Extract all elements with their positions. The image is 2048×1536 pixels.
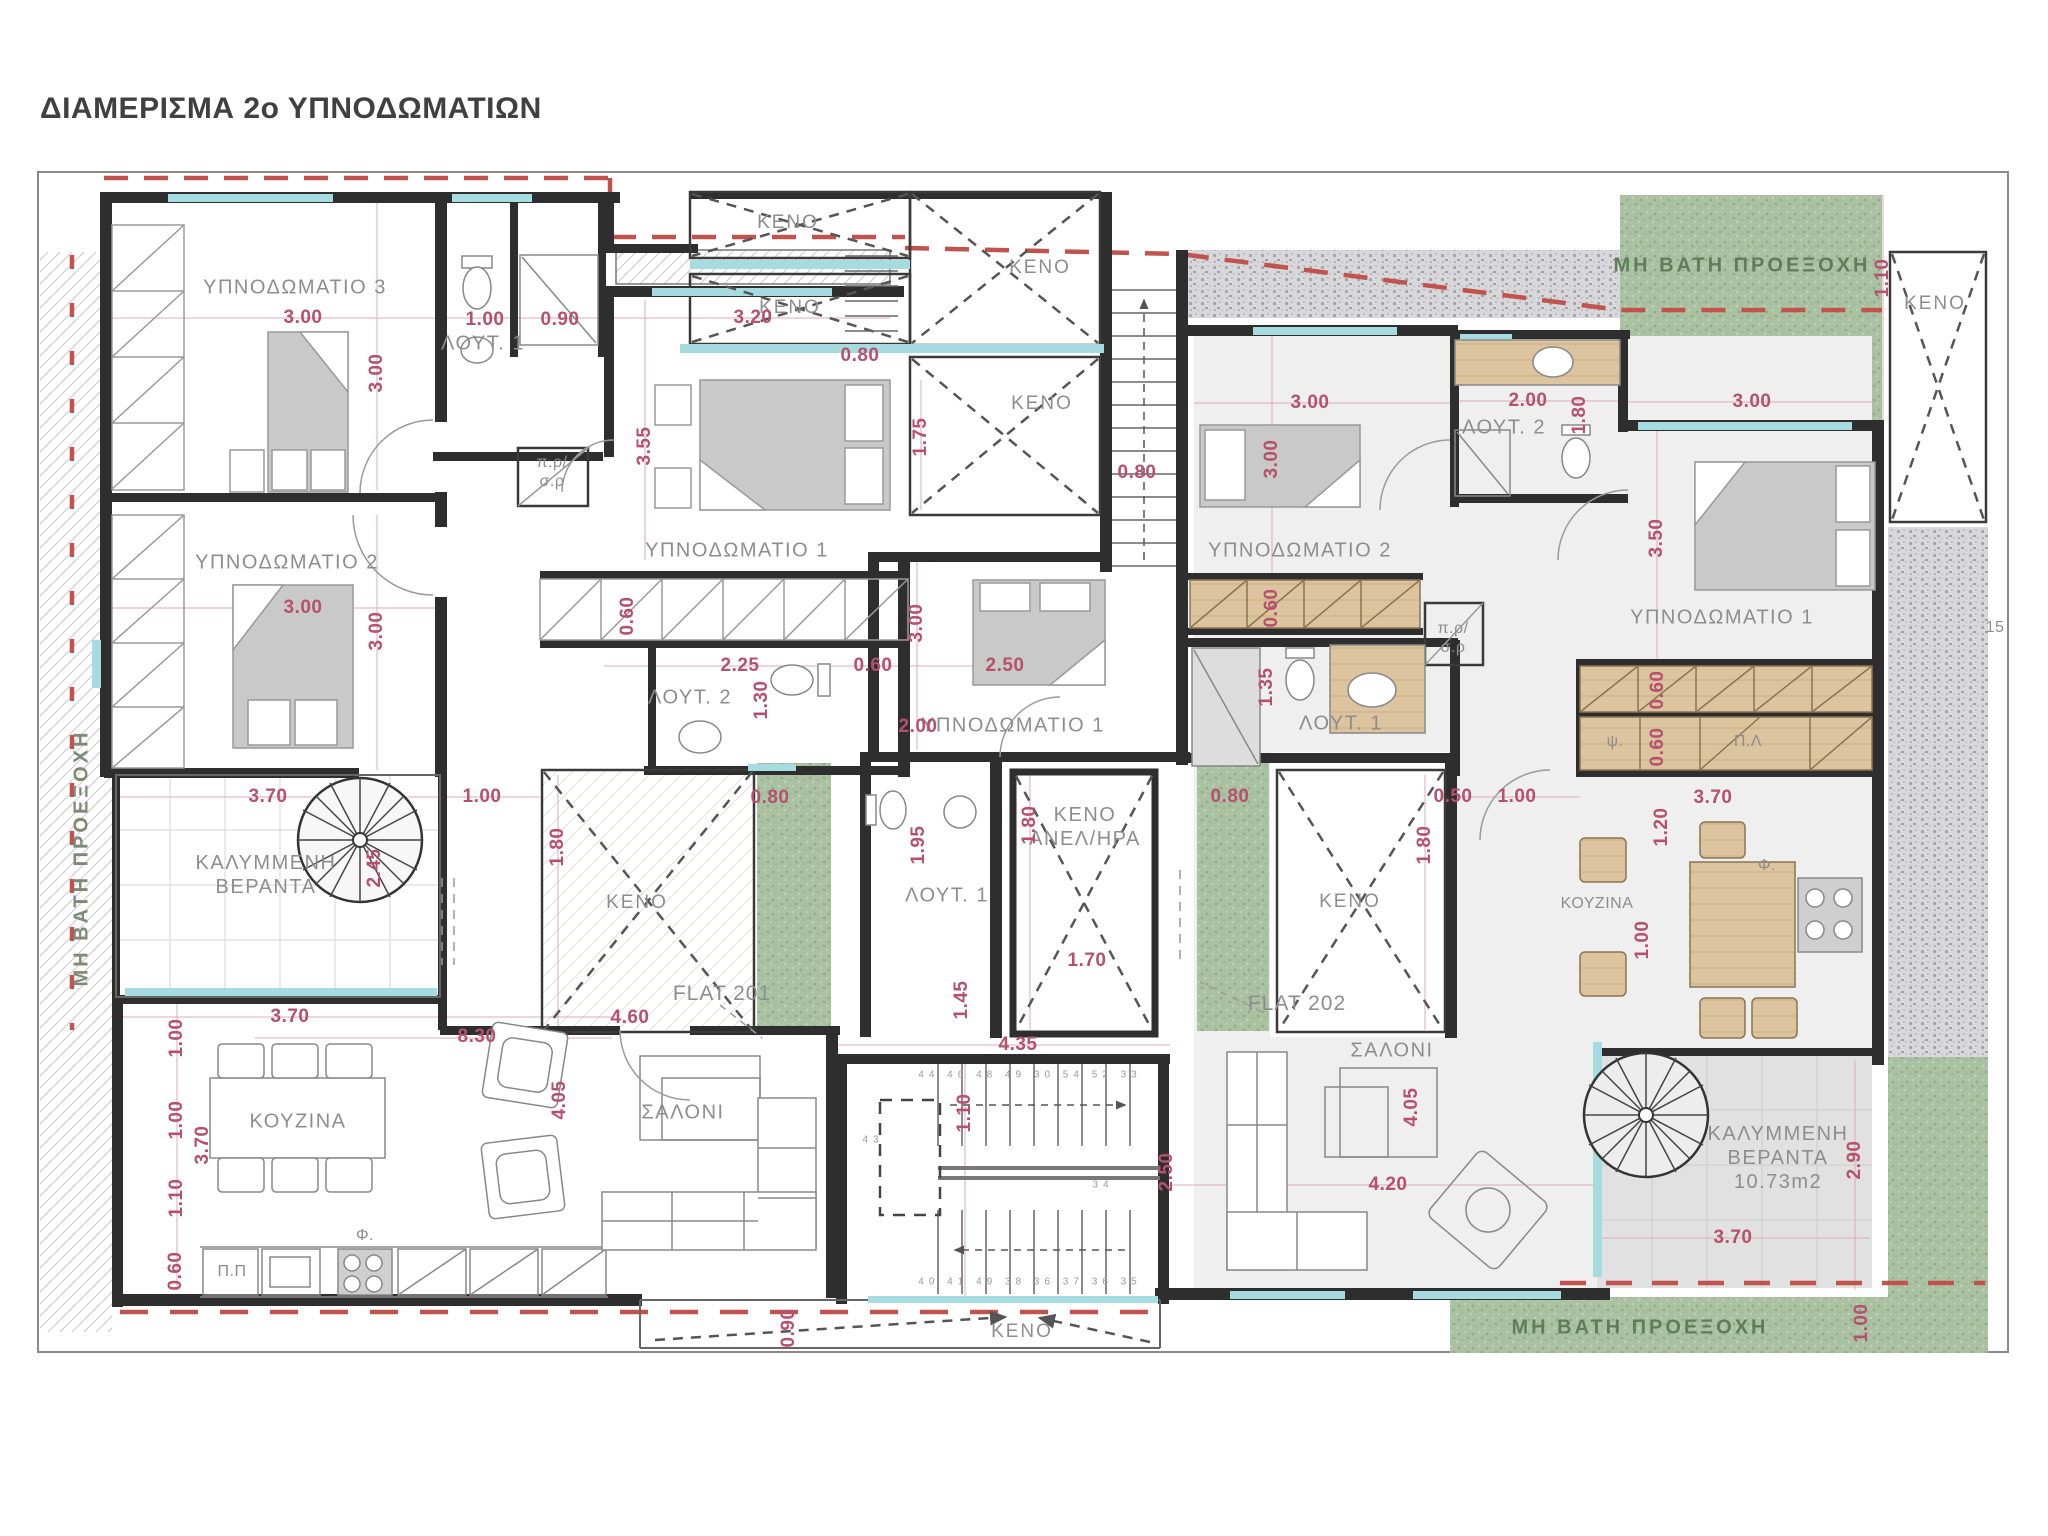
dim: 3.70 bbox=[271, 1006, 310, 1028]
dim: 1.00 bbox=[463, 786, 502, 808]
dim: 1.00 bbox=[166, 1101, 188, 1140]
stair-number-34: 34 bbox=[1092, 1180, 1113, 1191]
prsr-line2: σ.ρ bbox=[1441, 638, 1466, 657]
dim: 0.60 bbox=[1647, 728, 1669, 767]
room-label-f201-bed2: ΥΠΝΟΔΩΜΑΤΙΟ 2 bbox=[195, 552, 379, 575]
dim: 0.60 bbox=[1647, 671, 1669, 710]
dim: 1.10 bbox=[954, 1094, 976, 1133]
void-label-stairA: ΚΕΝΟ bbox=[1009, 257, 1071, 279]
stair-number-43: 43 bbox=[862, 1135, 883, 1146]
dim: 0.80 bbox=[1211, 786, 1250, 808]
veranda-line2: ΒΕΡΑΝΤΑ bbox=[216, 875, 317, 899]
room-label-f202-lout2: ΛΟΥΤ. 2 bbox=[1462, 417, 1546, 440]
dim: 2.50 bbox=[986, 655, 1025, 677]
prsr-line1: π.ρ/ bbox=[1437, 619, 1468, 638]
dim: 0.80 bbox=[841, 345, 880, 367]
room-label-f201-veranda: ΚΑΛΥΜΜΕΝΗΒΕΡΑΝΤΑ bbox=[196, 851, 337, 899]
dim: 1.80 bbox=[1569, 396, 1591, 435]
dim: 4.35 bbox=[999, 1034, 1038, 1056]
room-label-f202-kouzina: ΚΟΥΖΙΝΑ bbox=[1561, 895, 1634, 913]
dim: 4.20 bbox=[1369, 1174, 1408, 1196]
dim: 0.60 bbox=[1261, 589, 1283, 628]
label-fi-202: Φ. bbox=[1758, 857, 1776, 875]
dim: 3.50 bbox=[1646, 519, 1668, 558]
label-psi: ψ. bbox=[1607, 733, 1624, 751]
prsr-line2: σ.ρ bbox=[540, 472, 565, 491]
room-label-elevator-void: ΚΕΝΟΑΝΕΛ/ΗΡΑ bbox=[1029, 803, 1141, 851]
dim: 2.45 bbox=[364, 849, 386, 888]
void-label-right: ΚΕΝΟ bbox=[1319, 891, 1381, 913]
veranda-area: 10.73m2 bbox=[1734, 1170, 1822, 1194]
room-label-f202-veranda: ΚΑΛΥΜΜΕΝΗΒΕΡΑΝΤΑ10.73m2 bbox=[1708, 1122, 1849, 1194]
dim: 2.25 bbox=[721, 655, 760, 677]
room-label-f201-saloni: ΣΑΛΟΝΙ bbox=[641, 1102, 724, 1125]
floorplan-sheet: ΔΙΑΜΕΡΙΣΜΑ 2ο ΥΠΝΟΔΩΜΑΤΙΩΝ bbox=[0, 0, 2048, 1536]
dim: 0.80 bbox=[1118, 462, 1157, 484]
void-label-left: ΚΕΝΟ bbox=[606, 892, 668, 914]
dim: 1.45 bbox=[951, 981, 973, 1020]
dim: 1.80 bbox=[1414, 826, 1436, 865]
dim: 4.60 bbox=[611, 1007, 650, 1029]
label-note15: 15 bbox=[1986, 619, 2005, 637]
dim: 3.00 bbox=[1733, 391, 1772, 413]
dim: 1.00 bbox=[1851, 1304, 1873, 1343]
dim: 3.00 bbox=[284, 307, 323, 329]
dim: 3.00 bbox=[366, 354, 388, 393]
annotation-mh-top: ΜΗ ΒΑΤΗ ΠΡΟΕΞΟΧΗ bbox=[1614, 255, 1871, 278]
dim: 3.20 bbox=[734, 307, 773, 329]
flat-label-201: FLAT 201 bbox=[673, 982, 771, 1006]
room-label-f201-bed3: ΥΠΝΟΔΩΜΑΤΙΟ 3 bbox=[203, 277, 387, 300]
dim: 1.30 bbox=[751, 681, 773, 720]
dim: 0.90 bbox=[541, 309, 580, 331]
dim: 1.00 bbox=[166, 1019, 188, 1058]
dim: 1.80 bbox=[547, 828, 569, 867]
label-pl: Π.Λ bbox=[1734, 733, 1762, 751]
label-pp: Π.Π bbox=[217, 1263, 246, 1281]
room-label-f202-saloni: ΣΑΛΟΝΙ bbox=[1350, 1040, 1433, 1063]
dim: 3.70 bbox=[1694, 787, 1733, 809]
veranda-line1: ΚΑΛΥΜΜΕΝΗ bbox=[1708, 1122, 1849, 1146]
dim: 2.00 bbox=[1509, 390, 1548, 412]
dim: 3.00 bbox=[366, 612, 388, 651]
room-label-f201-prsr: π.ρ/σ.ρ bbox=[536, 453, 567, 491]
room-label-mid-lout1: ΛΟΥΤ. 1 bbox=[905, 885, 989, 908]
dim: 3.70 bbox=[1714, 1227, 1753, 1249]
void-label-bottom: ΚΕΝΟ bbox=[991, 1321, 1053, 1343]
dim: 1.00 bbox=[1632, 921, 1654, 960]
dim: 0.50 bbox=[1434, 786, 1473, 808]
elevator-line2: ΑΝΕΛ/ΗΡΑ bbox=[1029, 827, 1141, 851]
room-label-f202-bed2: ΥΠΝΟΔΩΜΑΤΙΟ 2 bbox=[1208, 540, 1392, 563]
dim: 3.55 bbox=[634, 427, 656, 466]
veranda-line1: ΚΑΛΥΜΜΕΝΗ bbox=[196, 851, 337, 875]
dim: 1.80 bbox=[1019, 806, 1041, 845]
dim: 2.90 bbox=[1844, 1141, 1866, 1180]
dim: 2.00 bbox=[899, 716, 938, 738]
dim: 8.30 bbox=[458, 1026, 497, 1048]
dim: 1.10 bbox=[1872, 259, 1894, 298]
dim: 3.00 bbox=[1261, 440, 1283, 479]
room-label-f201-bed1: ΥΠΝΟΔΩΜΑΤΙΟ 1 bbox=[645, 540, 829, 563]
void-label-top1: ΚΕΝΟ bbox=[757, 212, 819, 234]
annotation-mh-bottom: ΜΗ ΒΑΤΗ ΠΡΟΕΞΟΧΗ bbox=[1512, 1317, 1769, 1340]
room-label-f202-bed1: ΥΠΝΟΔΩΜΑΤΙΟ 1 bbox=[1630, 607, 1814, 630]
dim: 0.90 bbox=[778, 1309, 800, 1348]
label-fi-201: Φ. bbox=[356, 1227, 374, 1245]
stair-numbers-top: 44 46 48 49 30 54 52 33 bbox=[918, 1070, 1141, 1081]
stair-numbers-bottom: 40 41 49 38 36 37 36 35 bbox=[918, 1277, 1141, 1288]
dim: 0.60 bbox=[165, 1252, 187, 1291]
room-label-f201-bed1-mid: ΥΠΝΟΔΩΜΑΤΙΟ 1 bbox=[921, 715, 1105, 738]
dim: 2.50 bbox=[1156, 1153, 1178, 1192]
floorplan-drawing bbox=[0, 0, 2048, 1536]
dim: 1.20 bbox=[1651, 808, 1673, 847]
dim: 1.10 bbox=[166, 1179, 188, 1218]
dim: 3.00 bbox=[1291, 392, 1330, 414]
room-label-f201-kouzina: ΚΟΥΖΙΝΑ bbox=[249, 1111, 346, 1134]
dim: 1.75 bbox=[910, 418, 932, 457]
room-label-f201-lout1: ΛΟΥΤ. 1 bbox=[441, 333, 525, 356]
dim: 1.00 bbox=[466, 309, 505, 331]
flat-label-202: FLAT 202 bbox=[1248, 992, 1346, 1016]
spiral-stair-right bbox=[1584, 1053, 1708, 1177]
veranda-line2: ΒΕΡΑΝΤΑ bbox=[1728, 1146, 1829, 1170]
dim: 3.00 bbox=[284, 597, 323, 619]
dim: 3.70 bbox=[249, 786, 288, 808]
dim: 3.00 bbox=[906, 604, 928, 643]
void-label-topright: ΚΕΝΟ bbox=[1904, 293, 1966, 315]
room-label-f202-prsr: π.ρ/σ.ρ bbox=[1437, 619, 1468, 657]
dim: 3.70 bbox=[192, 1126, 214, 1165]
dim: 0.80 bbox=[751, 787, 790, 809]
prsr-line1: π.ρ/ bbox=[536, 453, 567, 472]
void-label-stairB: ΚΕΝΟ bbox=[1011, 393, 1073, 415]
dim: 0.60 bbox=[617, 597, 639, 636]
dim: 4.05 bbox=[1401, 1088, 1423, 1127]
dim: 1.35 bbox=[1256, 668, 1278, 707]
dim: 1.00 bbox=[1498, 786, 1537, 808]
annotation-mh-left: ΜΗ ΒΑΤΗ ΠΡΟΕΞΟΧΗ bbox=[71, 730, 94, 987]
dim: 4.05 bbox=[549, 1081, 571, 1120]
dim: 0.60 bbox=[854, 655, 893, 677]
dim: 1.95 bbox=[908, 826, 930, 865]
room-label-f201-lout2: ΛΟΥΤ. 2 bbox=[648, 687, 732, 710]
elevator-line1: ΚΕΝΟ bbox=[1054, 803, 1117, 827]
room-label-f202-lout1: ΛΟΥΤ. 1 bbox=[1299, 713, 1383, 736]
dim: 1.70 bbox=[1068, 950, 1107, 972]
